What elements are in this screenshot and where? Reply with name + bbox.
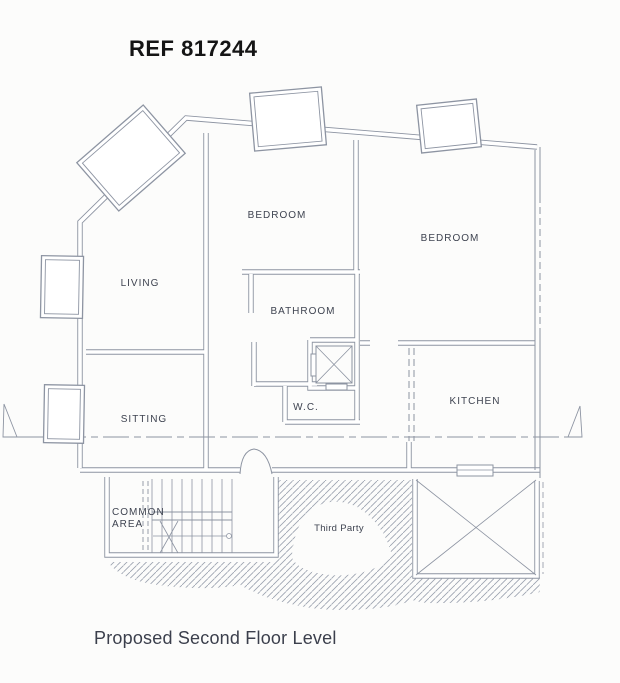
- plan-reference-title: REF 817244: [129, 36, 258, 61]
- room-label-common-area-line2: AREA: [112, 519, 143, 530]
- room-label-bedroom-front: BEDROOM: [248, 210, 307, 221]
- floor-plan-canvas: LIVING SITTING BEDROOM BEDROOM BATHROOM …: [0, 0, 620, 683]
- window-block-top-right: [417, 99, 482, 153]
- room-label-kitchen: KITCHEN: [450, 396, 501, 407]
- window-block-left-upper: [40, 256, 83, 319]
- room-label-common-area-line1: COMMON: [112, 507, 165, 518]
- window-block-left-lower: [43, 385, 84, 444]
- window-block-top-middle: [250, 87, 327, 151]
- room-label-sitting: SITTING: [121, 414, 167, 425]
- bottom-wall-window: [457, 465, 493, 476]
- room-label-bathroom: BATHROOM: [270, 306, 335, 317]
- scanned-plan-page: LIVING SITTING BEDROOM BEDROOM BATHROOM …: [0, 0, 620, 683]
- annotation-third-party: Third Party: [314, 523, 364, 534]
- room-label-bedroom-rear: BEDROOM: [421, 233, 480, 244]
- room-label-living: LIVING: [121, 278, 160, 289]
- room-label-wc: W.C.: [293, 402, 319, 413]
- plan-caption: Proposed Second Floor Level: [94, 628, 337, 648]
